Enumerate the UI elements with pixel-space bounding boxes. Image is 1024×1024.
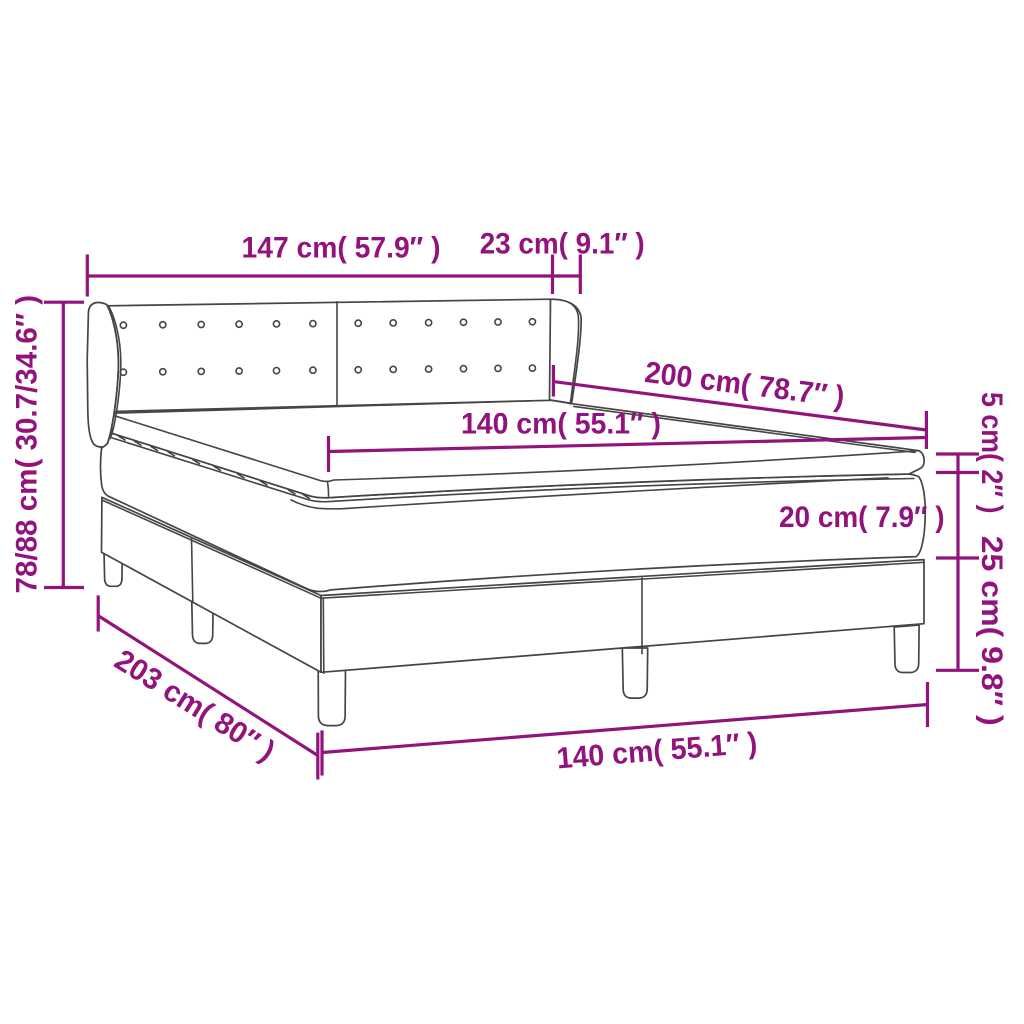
svg-text:23 cm( 9.1″ ): 23 cm( 9.1″ ) [480,228,645,261]
svg-text:20 cm( 7.9″ ): 20 cm( 7.9″ ) [779,501,945,534]
svg-text:25 cm( 9.8″ ): 25 cm( 9.8″ ) [975,536,1008,726]
svg-text:5 cm( 2″ ): 5 cm( 2″ ) [975,392,1008,514]
svg-text:78/88 cm( 30.7/34.6″ ): 78/88 cm( 30.7/34.6″ ) [11,295,44,594]
svg-text:140 cm( 55.1″ ): 140 cm( 55.1″ ) [461,408,661,441]
svg-text:147 cm( 57.9″ ): 147 cm( 57.9″ ) [242,231,441,264]
